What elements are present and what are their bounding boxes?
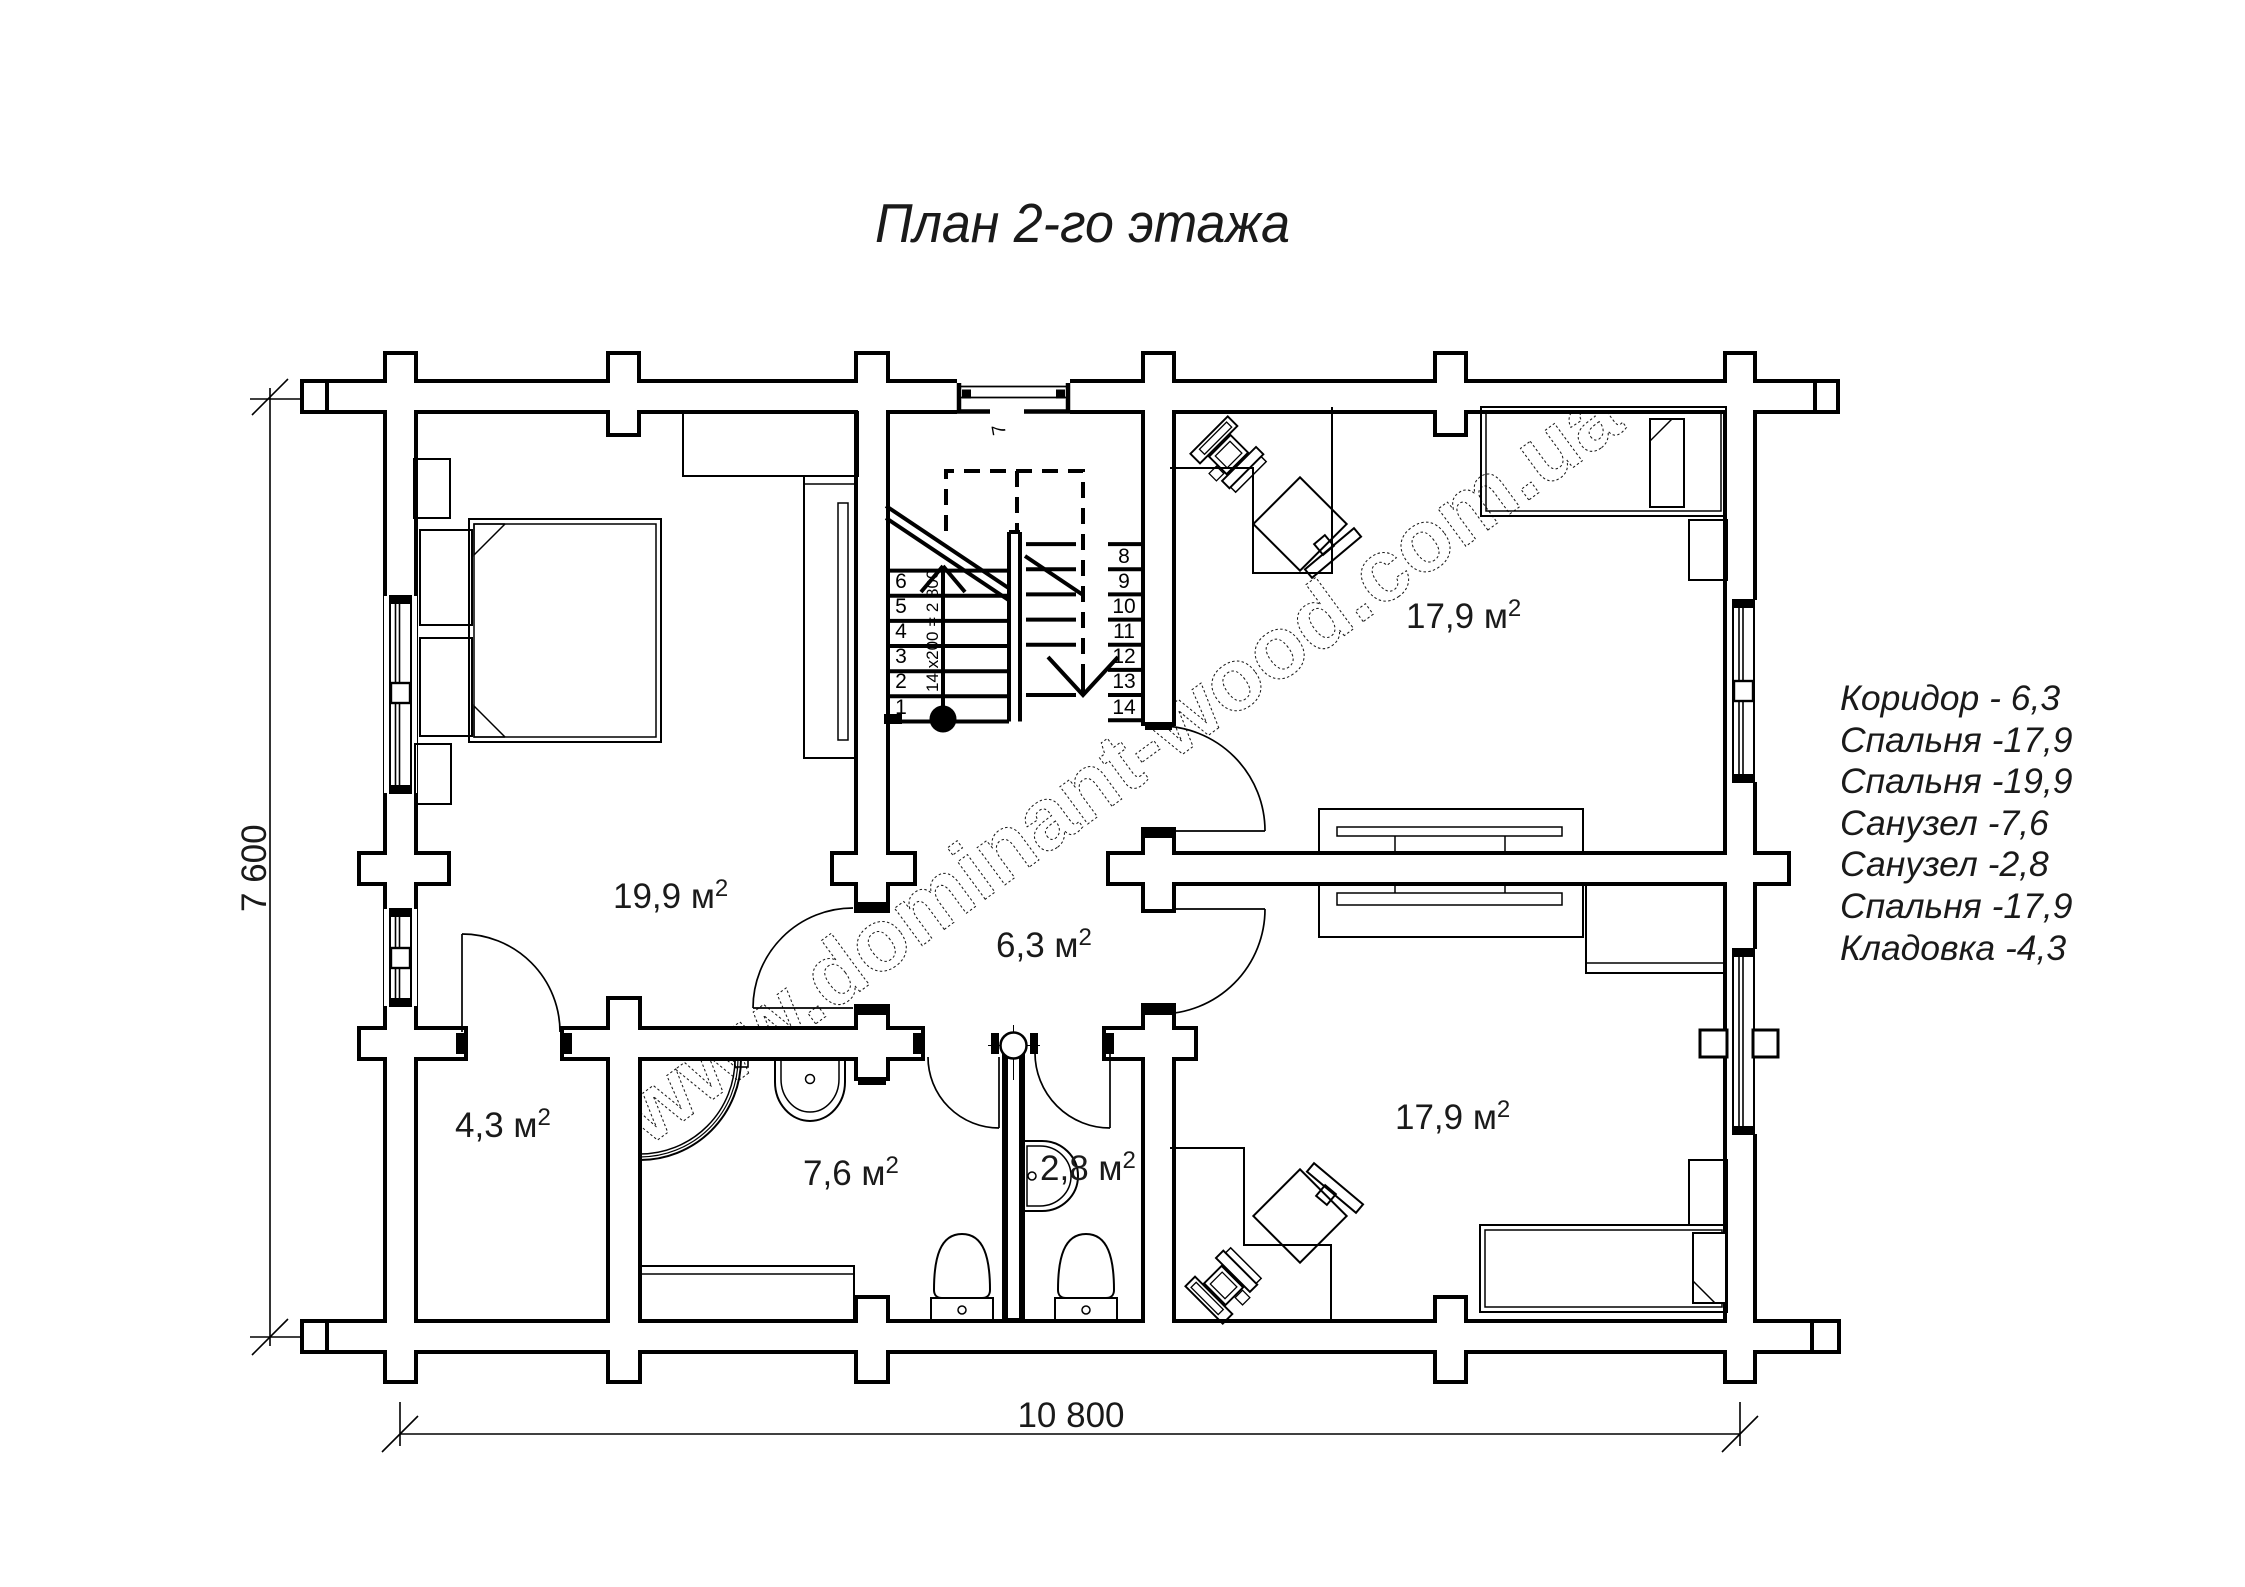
svg-text:14: 14 [1112,696,1136,719]
svg-text:8: 8 [1118,545,1130,568]
svg-text:Спальня -17,9: Спальня -17,9 [1840,886,2073,926]
svg-text:Коридор - 6,3: Коридор - 6,3 [1840,678,2060,718]
svg-text:План 2-го этажа: План 2-го этажа [875,192,1290,254]
svg-text:Кладовка -4,3: Кладовка -4,3 [1840,928,2066,968]
svg-text:9: 9 [1118,570,1130,593]
svg-text:11: 11 [1113,620,1135,643]
svg-text:Санузел -2,8: Санузел -2,8 [1840,844,2049,884]
svg-text:1: 1 [895,696,907,719]
svg-text:6: 6 [895,570,907,593]
svg-text:Санузел -7,6: Санузел -7,6 [1840,803,2049,843]
svg-text:19,9 м2: 19,9 м2 [613,875,728,916]
svg-text:7,6 м2: 7,6 м2 [803,1152,899,1193]
svg-text:10 800: 10 800 [1017,1396,1124,1435]
svg-text:6,3 м2: 6,3 м2 [996,924,1092,965]
svg-text:17,9 м2: 17,9 м2 [1395,1096,1510,1137]
svg-text:5: 5 [895,595,907,618]
svg-text:4: 4 [895,620,907,643]
svg-text:10: 10 [1112,595,1135,618]
svg-text:13: 13 [1112,670,1135,693]
svg-text:12: 12 [1112,645,1135,668]
svg-text:4,3 м2: 4,3 м2 [455,1104,551,1145]
svg-text:17,9 м2: 17,9 м2 [1406,595,1521,636]
svg-text:2,8 м2: 2,8 м2 [1040,1147,1136,1188]
svg-text:2: 2 [895,670,907,693]
svg-text:3: 3 [895,645,907,668]
svg-text:14 x200 = 2 800: 14 x200 = 2 800 [923,570,942,692]
svg-text:Спальня -19,9: Спальня -19,9 [1840,761,2073,801]
svg-text:7 600: 7 600 [235,824,274,912]
svg-text:Спальня -17,9: Спальня -17,9 [1840,720,2073,760]
